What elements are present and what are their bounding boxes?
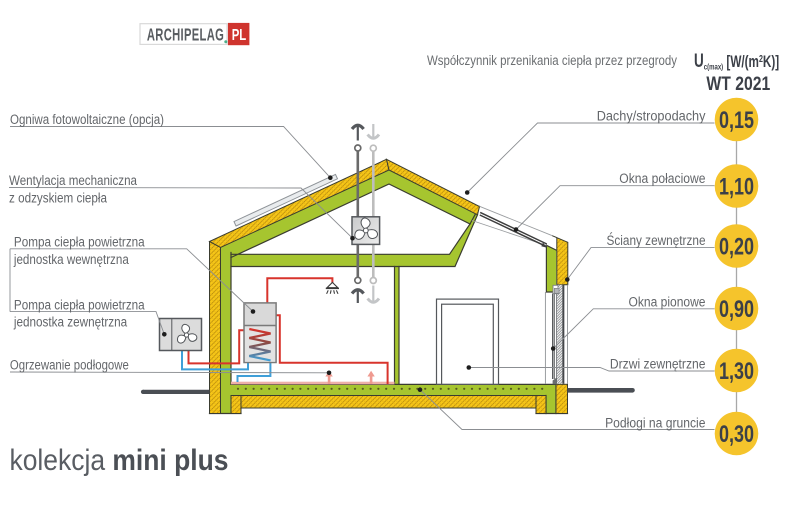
svg-text:Okna pionowe: Okna pionowe — [629, 295, 706, 311]
svg-text:jednostka wewnętrzna: jednostka wewnętrzna — [13, 252, 129, 268]
svg-text:1,30: 1,30 — [719, 358, 754, 385]
svg-text:Okna połaciowe: Okna połaciowe — [619, 171, 705, 187]
svg-text:Pompa ciepła powietrzna: Pompa ciepła powietrzna — [14, 235, 145, 251]
svg-text:WT 2021: WT 2021 — [706, 73, 770, 95]
svg-text:ARCHIPELAG: ARCHIPELAG — [147, 26, 224, 45]
svg-text:PL: PL — [232, 27, 247, 44]
svg-text:Pompa ciepła powietrzna: Pompa ciepła powietrzna — [14, 298, 145, 314]
svg-text:Ogniwa fotowoltaiczne (opcja): Ogniwa fotowoltaiczne (opcja) — [10, 112, 164, 128]
svg-text:jednostka zewnętrzna: jednostka zewnętrzna — [13, 315, 127, 331]
svg-text:Drzwi zewnętrzne: Drzwi zewnętrzne — [610, 357, 706, 373]
svg-text:Wentylacja mechaniczna: Wentylacja mechaniczna — [9, 173, 137, 189]
svg-text:Współczynnik przenikania ciepł: Współczynnik przenikania ciepła przez pr… — [427, 53, 678, 69]
svg-text:0,30: 0,30 — [719, 421, 754, 448]
svg-text:0,90: 0,90 — [719, 296, 754, 323]
svg-text:Podłogi na gruncie: Podłogi na gruncie — [605, 416, 705, 432]
svg-text:Ogrzewanie podłogowe: Ogrzewanie podłogowe — [10, 358, 129, 374]
svg-text:kolekcja mini plus: kolekcja mini plus — [10, 444, 229, 477]
svg-text:0,15: 0,15 — [719, 107, 754, 134]
svg-text:Ściany zewnętrzne: Ściany zewnętrzne — [607, 231, 706, 249]
svg-text:z odzyskiem ciepła: z odzyskiem ciepła — [9, 191, 107, 207]
svg-text:0,20: 0,20 — [719, 234, 754, 261]
svg-text:1,10: 1,10 — [719, 174, 754, 201]
svg-text:Dachy/stropodachy: Dachy/stropodachy — [597, 109, 707, 125]
